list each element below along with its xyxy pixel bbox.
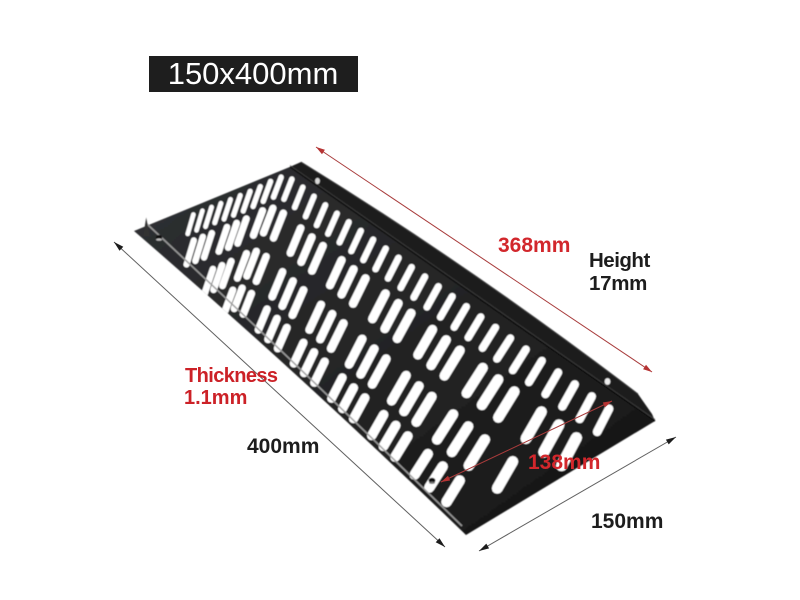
svg-text:150x400mm: 150x400mm: [168, 56, 339, 91]
svg-text:Thickness: Thickness: [185, 365, 278, 387]
svg-text:150mm: 150mm: [591, 510, 663, 533]
svg-text:368mm: 368mm: [498, 234, 570, 257]
svg-text:17mm: 17mm: [589, 272, 647, 295]
svg-text:138mm: 138mm: [528, 451, 600, 474]
svg-text:1.1mm: 1.1mm: [184, 387, 247, 409]
svg-text:400mm: 400mm: [247, 435, 319, 458]
svg-text:Height: Height: [589, 249, 650, 272]
